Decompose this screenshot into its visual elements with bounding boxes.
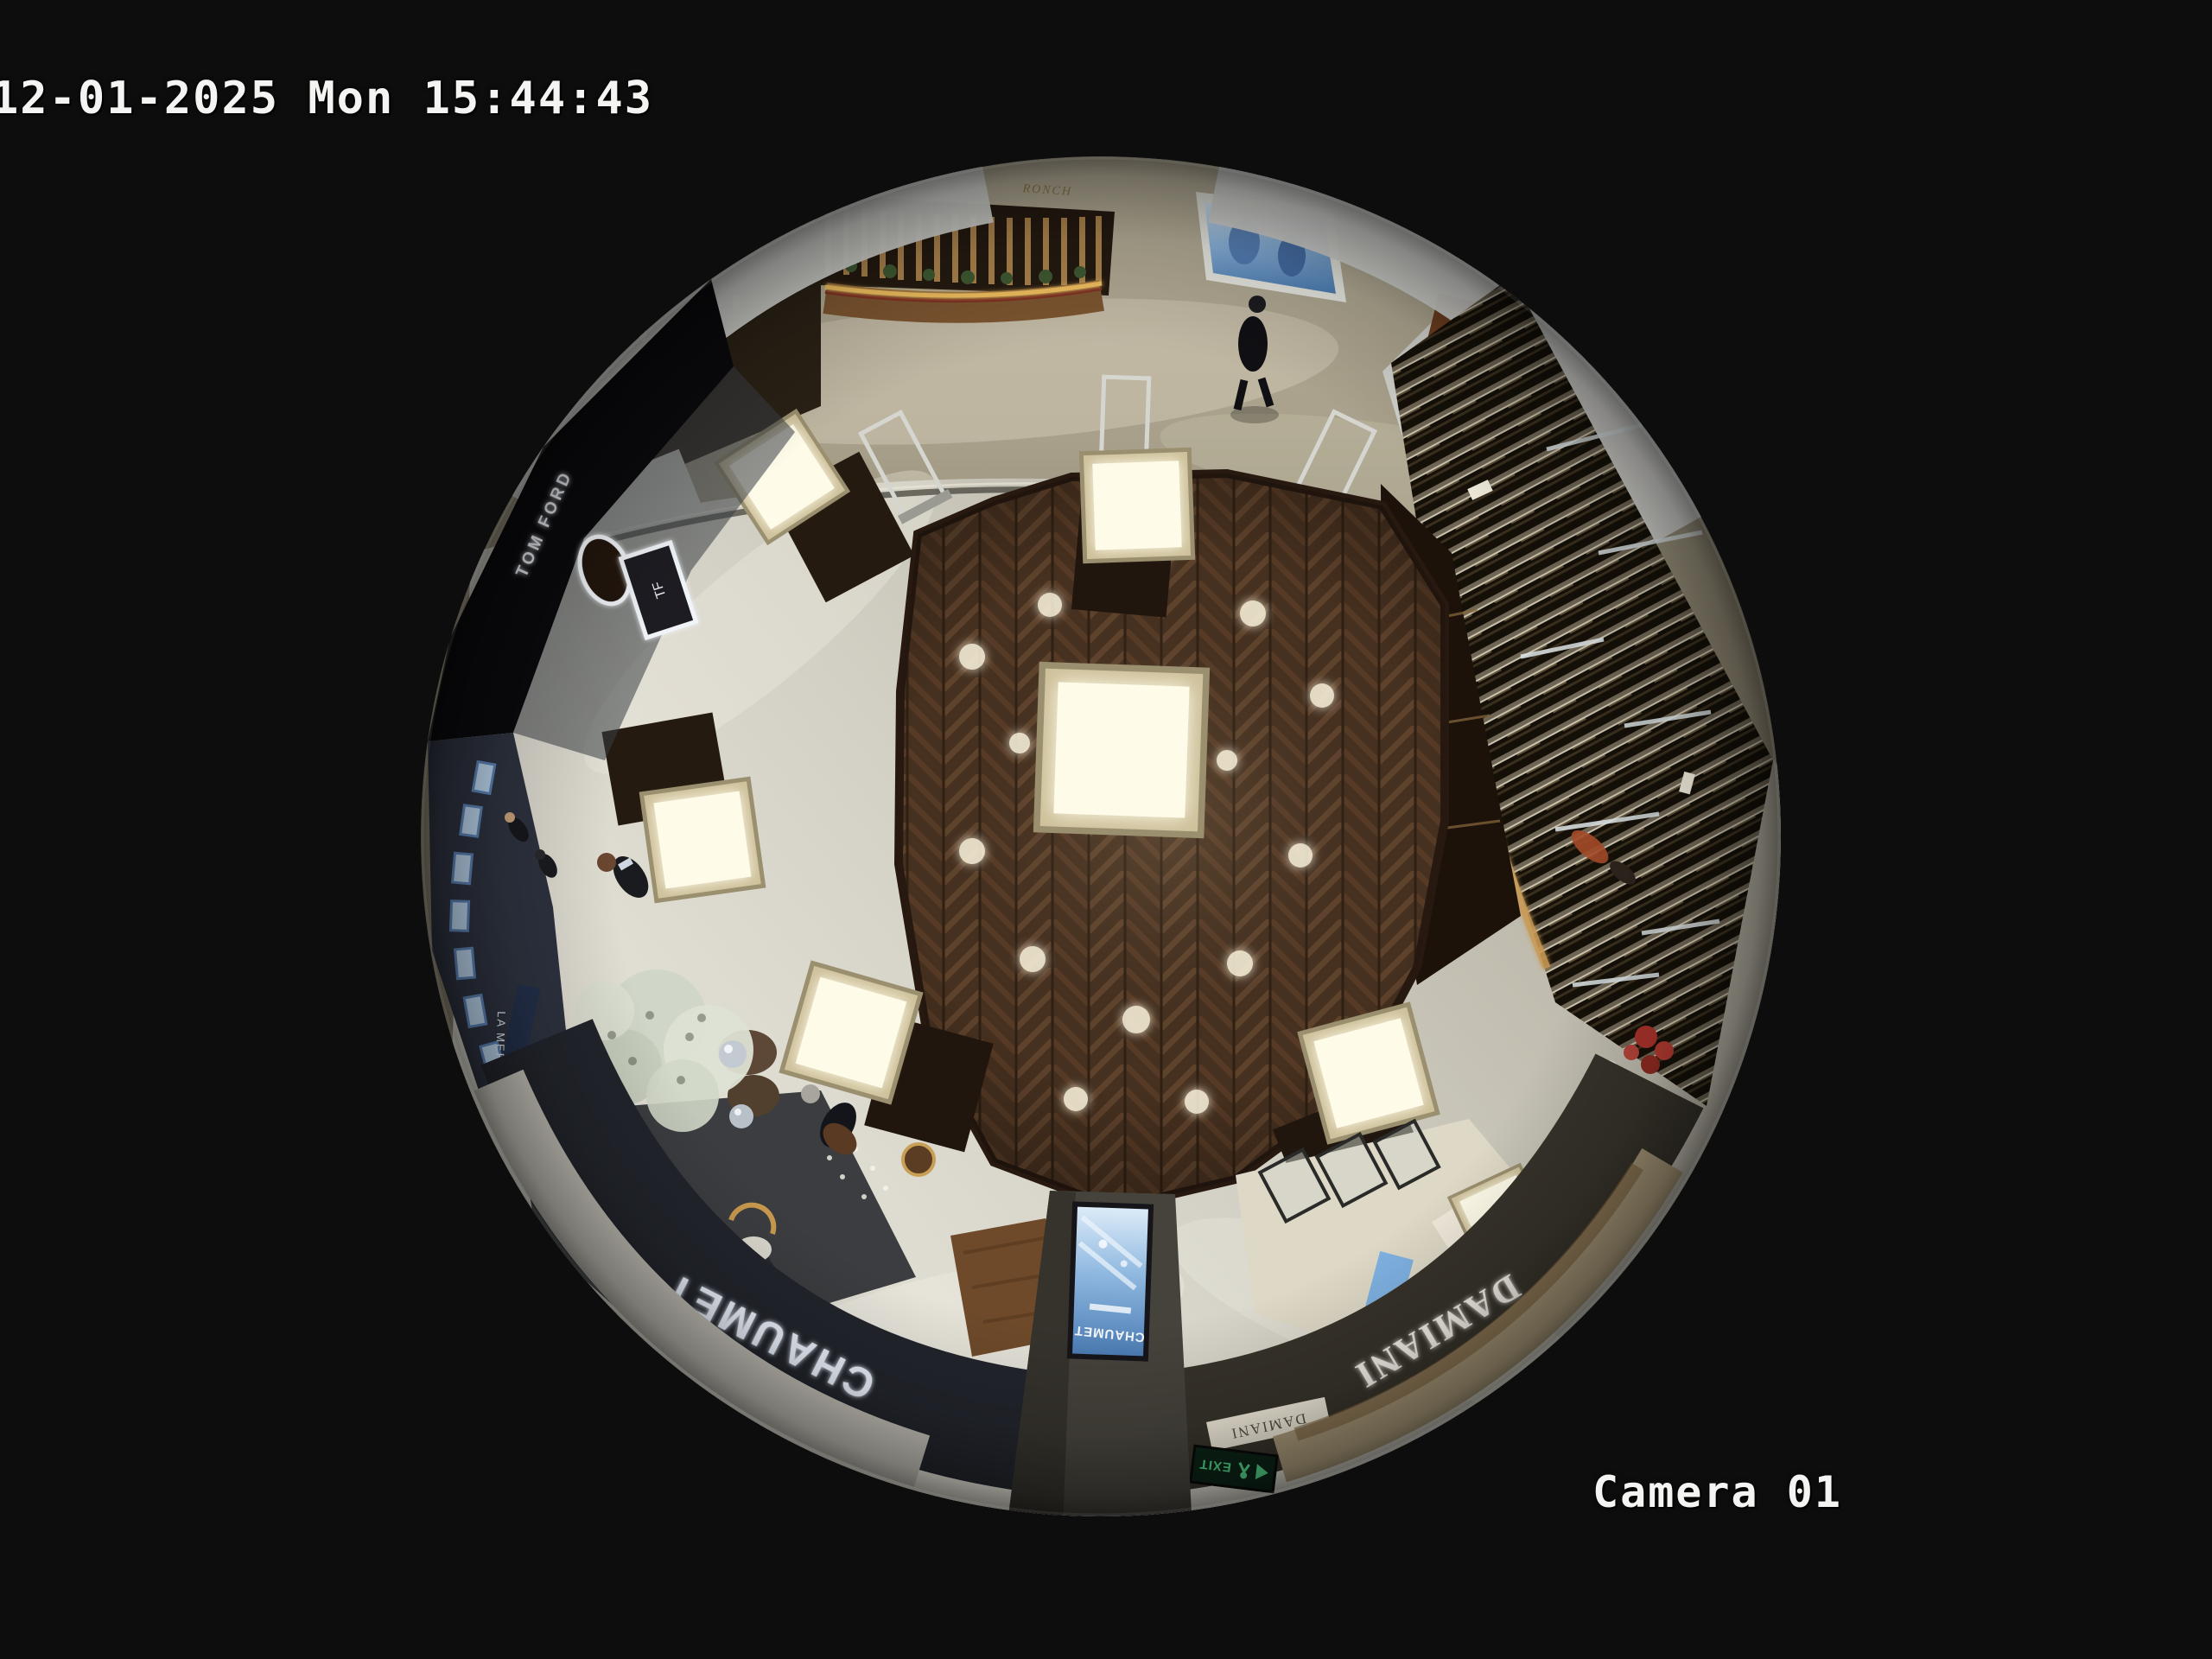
lens-vignette <box>421 156 1781 1516</box>
camera-label-overlay: Camera 01 <box>1592 1467 1842 1517</box>
fisheye-camera-view: RONCH <box>0 0 2212 1659</box>
cctv-frame: { "window": { "width": 2560, "height": 1… <box>0 0 2212 1659</box>
timestamp-overlay: 12-01-2025 Mon 15:44:43 <box>0 73 653 124</box>
